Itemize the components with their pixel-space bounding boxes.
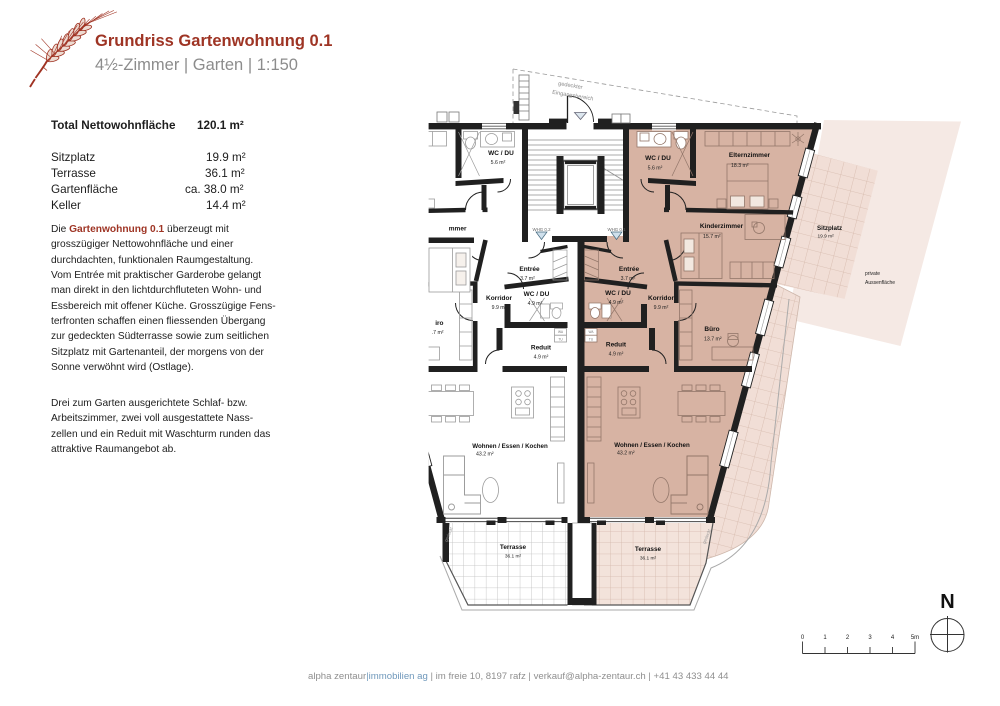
svg-text:WA: WA (588, 330, 594, 334)
svg-text:Terrasse: Terrasse (500, 544, 527, 551)
svg-text:4.9 m²: 4.9 m² (609, 352, 624, 358)
svg-text:9.9 m²: 9.9 m² (492, 305, 507, 311)
svg-text:36.1 m²: 36.1 m² (505, 554, 522, 560)
svg-text:5m: 5m (911, 635, 919, 641)
svg-text:WHG 0.1: WHG 0.1 (607, 227, 626, 232)
svg-text:WC / DU: WC / DU (524, 291, 550, 298)
svg-text:Korridor: Korridor (648, 295, 674, 302)
svg-text:2: 2 (846, 635, 850, 641)
svg-text:5.6 m²: 5.6 m² (491, 160, 506, 166)
svg-text:4: 4 (891, 635, 895, 641)
svg-text:Sitzplatz: Sitzplatz (817, 225, 842, 232)
svg-text:Elternzimmer: Elternzimmer (729, 152, 771, 159)
svg-text:43.2 m²: 43.2 m² (617, 451, 635, 457)
svg-text:4.9 m²: 4.9 m² (534, 355, 549, 361)
svg-text:Wohnen / Essen / Kochen: Wohnen / Essen / Kochen (614, 442, 690, 449)
svg-text:Büro: Büro (704, 326, 719, 333)
svg-text:Eingangsbereich: Eingangsbereich (552, 90, 594, 103)
svg-text:Reduit: Reduit (531, 345, 552, 352)
svg-text:Aussenfläche: Aussenfläche (865, 280, 895, 286)
svg-text:18.3 m²: 18.3 m² (731, 163, 749, 169)
svg-text:private: private (865, 271, 880, 277)
svg-text:Entrée: Entrée (519, 266, 540, 273)
svg-text:WHG 0.2: WHG 0.2 (532, 227, 551, 232)
svg-text:Kinderzimmer: Kinderzimmer (700, 223, 744, 230)
svg-text:3.7 m²: 3.7 m² (520, 276, 535, 282)
svg-text:15.7 m²: 15.7 m² (703, 234, 721, 240)
svg-text:WA: WA (558, 330, 564, 334)
svg-text:3.7 m²: 3.7 m² (621, 276, 636, 282)
svg-text:WC / DU: WC / DU (605, 290, 631, 297)
svg-text:19.9 m²: 19.9 m² (818, 234, 835, 240)
svg-text:WC / DU: WC / DU (645, 155, 671, 162)
svg-text:Entrée: Entrée (619, 266, 640, 273)
svg-text:Wohnen / Essen / Kochen: Wohnen / Essen / Kochen (472, 443, 548, 450)
svg-text:4.9 m²: 4.9 m² (528, 301, 543, 307)
svg-text:Terrasse: Terrasse (635, 546, 662, 553)
svg-text:5.6 m²: 5.6 m² (648, 166, 663, 172)
svg-text:9.9 m²: 9.9 m² (654, 305, 669, 311)
svg-text:.7 m²: .7 m² (432, 330, 444, 336)
svg-text:TU: TU (589, 338, 594, 342)
svg-text:N: N (940, 591, 954, 613)
svg-text:mmer: mmer (449, 226, 467, 233)
svg-text:TU: TU (558, 338, 563, 342)
svg-text:1: 1 (823, 635, 827, 641)
svg-text:Reduit: Reduit (606, 342, 627, 349)
svg-text:WC / DU: WC / DU (488, 150, 514, 157)
svg-text:36.1 m²: 36.1 m² (640, 556, 657, 562)
svg-text:43.2 m²: 43.2 m² (476, 452, 494, 458)
svg-text:iro: iro (435, 320, 443, 327)
svg-text:gedeckter: gedeckter (558, 81, 583, 91)
svg-text:13.7 m²: 13.7 m² (704, 337, 722, 343)
svg-text:0: 0 (801, 635, 805, 641)
svg-text:Korridor: Korridor (486, 295, 512, 302)
svg-text:3: 3 (868, 635, 872, 641)
svg-text:4.9 m²: 4.9 m² (609, 300, 624, 306)
